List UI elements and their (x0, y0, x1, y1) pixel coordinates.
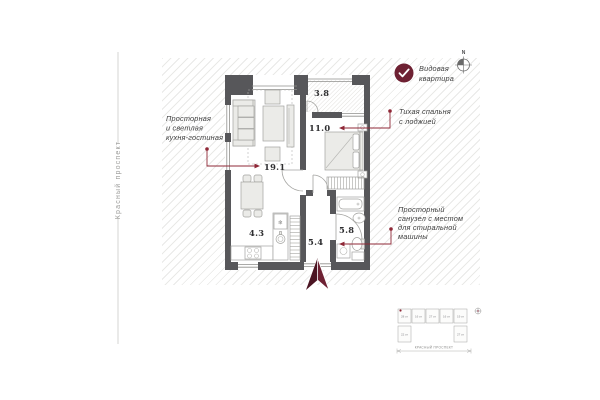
hall-closet (290, 216, 300, 260)
wardrobe (327, 177, 364, 189)
coffee-table (263, 106, 284, 141)
sofa (233, 100, 255, 146)
fridge: ❄ (274, 214, 287, 229)
stove (245, 247, 261, 259)
nightstand-top (358, 124, 367, 131)
room-label-hall: 5.4 (308, 237, 323, 247)
washing-machine (337, 244, 350, 258)
site-block-label: 22 эт (401, 333, 409, 337)
street-name: Красный проспект (114, 141, 122, 219)
site-block-label: 27 эт (429, 315, 437, 319)
annotation-text: с лоджией (399, 117, 436, 126)
site-blocks-top: 28 эт 16 эт 27 эт 16 эт 19 эт (398, 309, 467, 323)
room-label-kitchen: 4.3 (249, 228, 264, 238)
badge-line2: квартира (419, 74, 454, 83)
mini-compass-icon (475, 308, 481, 314)
site-plan: 28 эт 16 эт 27 эт 16 эт 19 эт 22 эт 27 э… (397, 308, 481, 354)
site-dimension: Красный проспект (397, 346, 471, 354)
site-highlight-dot (399, 309, 401, 311)
bathroom-counter (352, 252, 364, 260)
pillow (353, 134, 359, 150)
badge-line1: Видовая (419, 64, 449, 73)
room-label-loggia: 3.8 (314, 88, 329, 98)
site-block-label: 16 эт (415, 315, 423, 319)
site-blocks-bottom: 22 эт 27 эт (398, 326, 467, 342)
north-compass-icon: N (455, 50, 472, 74)
street-label: Красный проспект (114, 52, 122, 344)
tv-console (287, 105, 294, 147)
annotation-text: Просторный (398, 205, 445, 214)
annotation-text: кухня-гостиная (166, 133, 223, 142)
annotation-text: санузел с местом (398, 214, 463, 223)
badge-circle (395, 64, 414, 83)
armchair-bottom (265, 147, 280, 161)
site-block-label: 27 эт (457, 333, 465, 337)
site-street-label: Красный проспект (415, 346, 454, 350)
annotation-text: Тихая спальня (399, 107, 451, 116)
room-label-bedroom: 11.0 (309, 123, 330, 133)
bathroom-sink (353, 213, 365, 223)
site-block-label: 19 эт (457, 315, 465, 319)
annotation-text: для стиральной (398, 223, 457, 232)
bed (325, 132, 363, 170)
site-block-label: 16 эт (443, 315, 451, 319)
pillow (353, 152, 359, 168)
armchair-top (265, 90, 280, 104)
floor-plan: ❄ (225, 75, 370, 290)
bathtub (337, 197, 364, 211)
svg-text:❄: ❄ (278, 220, 283, 227)
room-label-living: 19.1 (264, 162, 285, 172)
furniture-bedroom (325, 124, 367, 189)
annotation-text: Просторная (166, 114, 211, 123)
compass-n-label: N (462, 50, 466, 56)
annotation-text: машины (398, 232, 428, 241)
view-badge: Видовая квартира (395, 64, 455, 84)
plan-canvas: Красный проспект (0, 0, 600, 400)
annotation-text: и светлая (166, 124, 203, 133)
floorplan-page: Красный проспект (0, 0, 600, 400)
room-label-bath: 5.8 (339, 225, 354, 235)
site-block-label: 28 эт (401, 315, 409, 319)
